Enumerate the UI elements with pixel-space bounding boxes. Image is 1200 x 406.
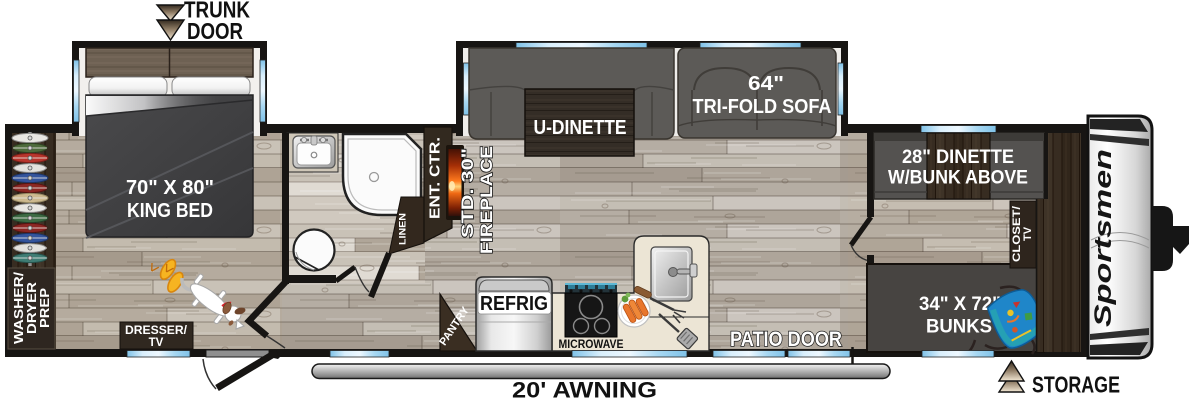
svg-text:MICROWAVE: MICROWAVE bbox=[559, 337, 624, 351]
svg-text:LINEN: LINEN bbox=[398, 213, 408, 245]
svg-text:ENT. CTR.: ENT. CTR. bbox=[428, 137, 444, 219]
svg-text:STD. 30": STD. 30" bbox=[459, 148, 477, 238]
svg-text:DOOR: DOOR bbox=[187, 18, 243, 44]
svg-text:PATIO DOOR: PATIO DOOR bbox=[730, 328, 842, 351]
svg-text:64": 64" bbox=[748, 73, 784, 95]
svg-text:20' AWNING: 20' AWNING bbox=[512, 378, 657, 402]
svg-text:70" X 80": 70" X 80" bbox=[126, 176, 214, 199]
svg-text:W/BUNK ABOVE: W/BUNK ABOVE bbox=[888, 168, 1028, 189]
svg-text:BUNKS: BUNKS bbox=[926, 317, 992, 338]
svg-text:REFRIG: REFRIG bbox=[480, 293, 548, 315]
svg-text:28" DINETTE: 28" DINETTE bbox=[902, 147, 1014, 168]
svg-text:TRI-FOLD SOFA: TRI-FOLD SOFA bbox=[693, 96, 832, 118]
svg-text:TV: TV bbox=[1022, 226, 1034, 241]
svg-text:DRESSER/: DRESSER/ bbox=[125, 325, 188, 337]
svg-text:FIREPLACE: FIREPLACE bbox=[478, 146, 496, 254]
svg-text:Sportsmen: Sportsmen bbox=[1090, 149, 1117, 327]
svg-text:KING BED: KING BED bbox=[127, 199, 213, 222]
svg-text:PREP: PREP bbox=[37, 288, 52, 328]
svg-text:TV: TV bbox=[149, 337, 164, 349]
svg-text:U-DINETTE: U-DINETTE bbox=[534, 117, 627, 139]
svg-text:STORAGE: STORAGE bbox=[1032, 372, 1120, 398]
